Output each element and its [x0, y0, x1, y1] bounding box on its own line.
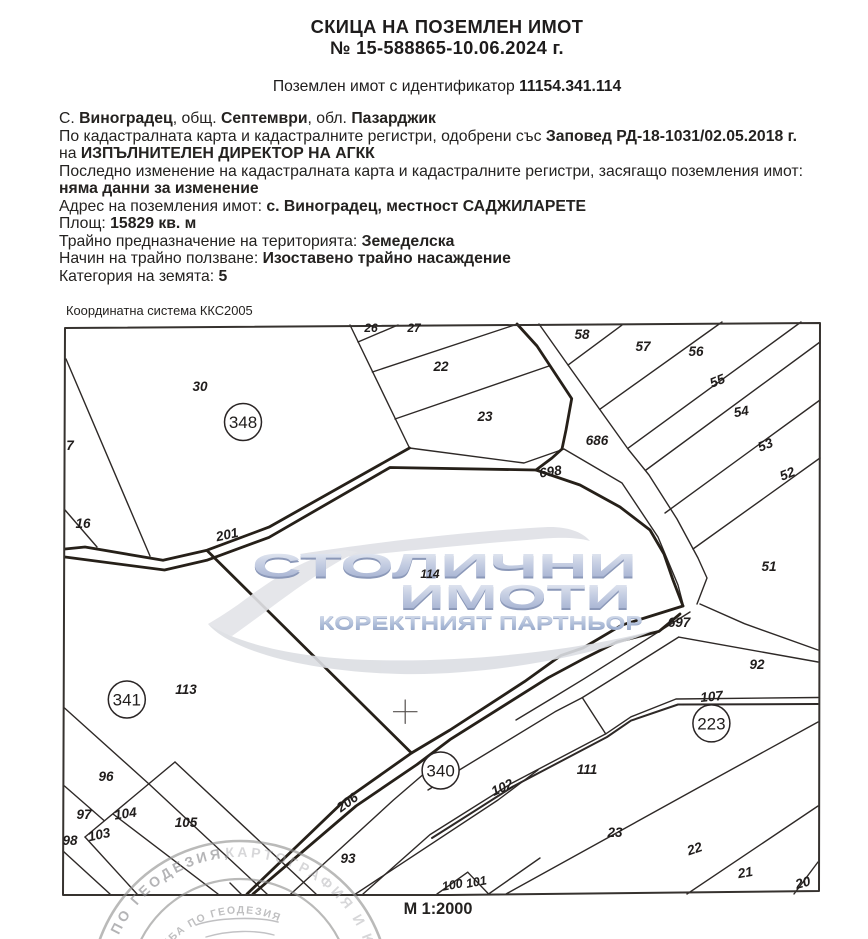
- svg-text:113: 113: [175, 682, 197, 697]
- svg-text:7: 7: [66, 438, 75, 453]
- svg-text:101: 101: [465, 873, 488, 890]
- svg-text:114: 114: [420, 567, 439, 581]
- svg-text:104: 104: [113, 804, 138, 822]
- svg-text:М 1:2000: М 1:2000: [404, 900, 473, 918]
- svg-text:341: 341: [113, 691, 141, 710]
- svg-text:57: 57: [635, 339, 652, 354]
- svg-text:102: 102: [489, 776, 516, 799]
- svg-text:ИМОТИ: ИМОТИ: [399, 578, 631, 615]
- svg-text:697: 697: [668, 615, 692, 630]
- svg-text:23: 23: [606, 825, 623, 840]
- svg-text:16: 16: [75, 516, 91, 531]
- svg-text:98: 98: [62, 833, 78, 848]
- svg-text:21: 21: [736, 864, 754, 882]
- svg-text:58: 58: [574, 327, 590, 342]
- svg-text:111: 111: [577, 762, 598, 777]
- svg-text:53: 53: [756, 435, 776, 455]
- svg-text:698: 698: [538, 462, 563, 480]
- svg-text:201: 201: [214, 525, 240, 545]
- svg-text:52: 52: [778, 464, 798, 484]
- svg-text:223: 223: [697, 714, 725, 733]
- svg-text:340: 340: [426, 762, 454, 781]
- svg-text:97: 97: [76, 807, 93, 822]
- svg-text:96: 96: [98, 769, 114, 784]
- svg-text:20: 20: [793, 873, 813, 892]
- svg-text:103: 103: [86, 825, 112, 844]
- svg-text:105: 105: [175, 815, 198, 830]
- svg-text:348: 348: [229, 413, 257, 432]
- svg-text:23: 23: [476, 409, 493, 424]
- svg-text:92: 92: [749, 657, 765, 672]
- svg-text:26: 26: [363, 321, 378, 335]
- svg-text:107: 107: [700, 688, 725, 705]
- svg-text:27: 27: [406, 321, 422, 335]
- svg-text:56: 56: [688, 344, 704, 359]
- svg-text:КОРЕКТНИЯТ ПАРТНЬОР: КОРЕКТНИЯТ ПАРТНЬОР: [319, 613, 643, 633]
- svg-text:54: 54: [733, 403, 751, 420]
- svg-text:51: 51: [761, 559, 776, 574]
- svg-text:22: 22: [684, 839, 704, 858]
- svg-text:КАРТОГРАФИЯ И КАД: КАРТОГРАФИЯ И КАД: [0, 0, 378, 939]
- svg-text:100: 100: [441, 876, 464, 893]
- svg-text:93: 93: [340, 851, 356, 866]
- svg-text:30: 30: [192, 379, 208, 394]
- svg-text:206: 206: [333, 789, 361, 815]
- svg-text:22: 22: [432, 359, 449, 374]
- svg-text:686: 686: [586, 433, 609, 448]
